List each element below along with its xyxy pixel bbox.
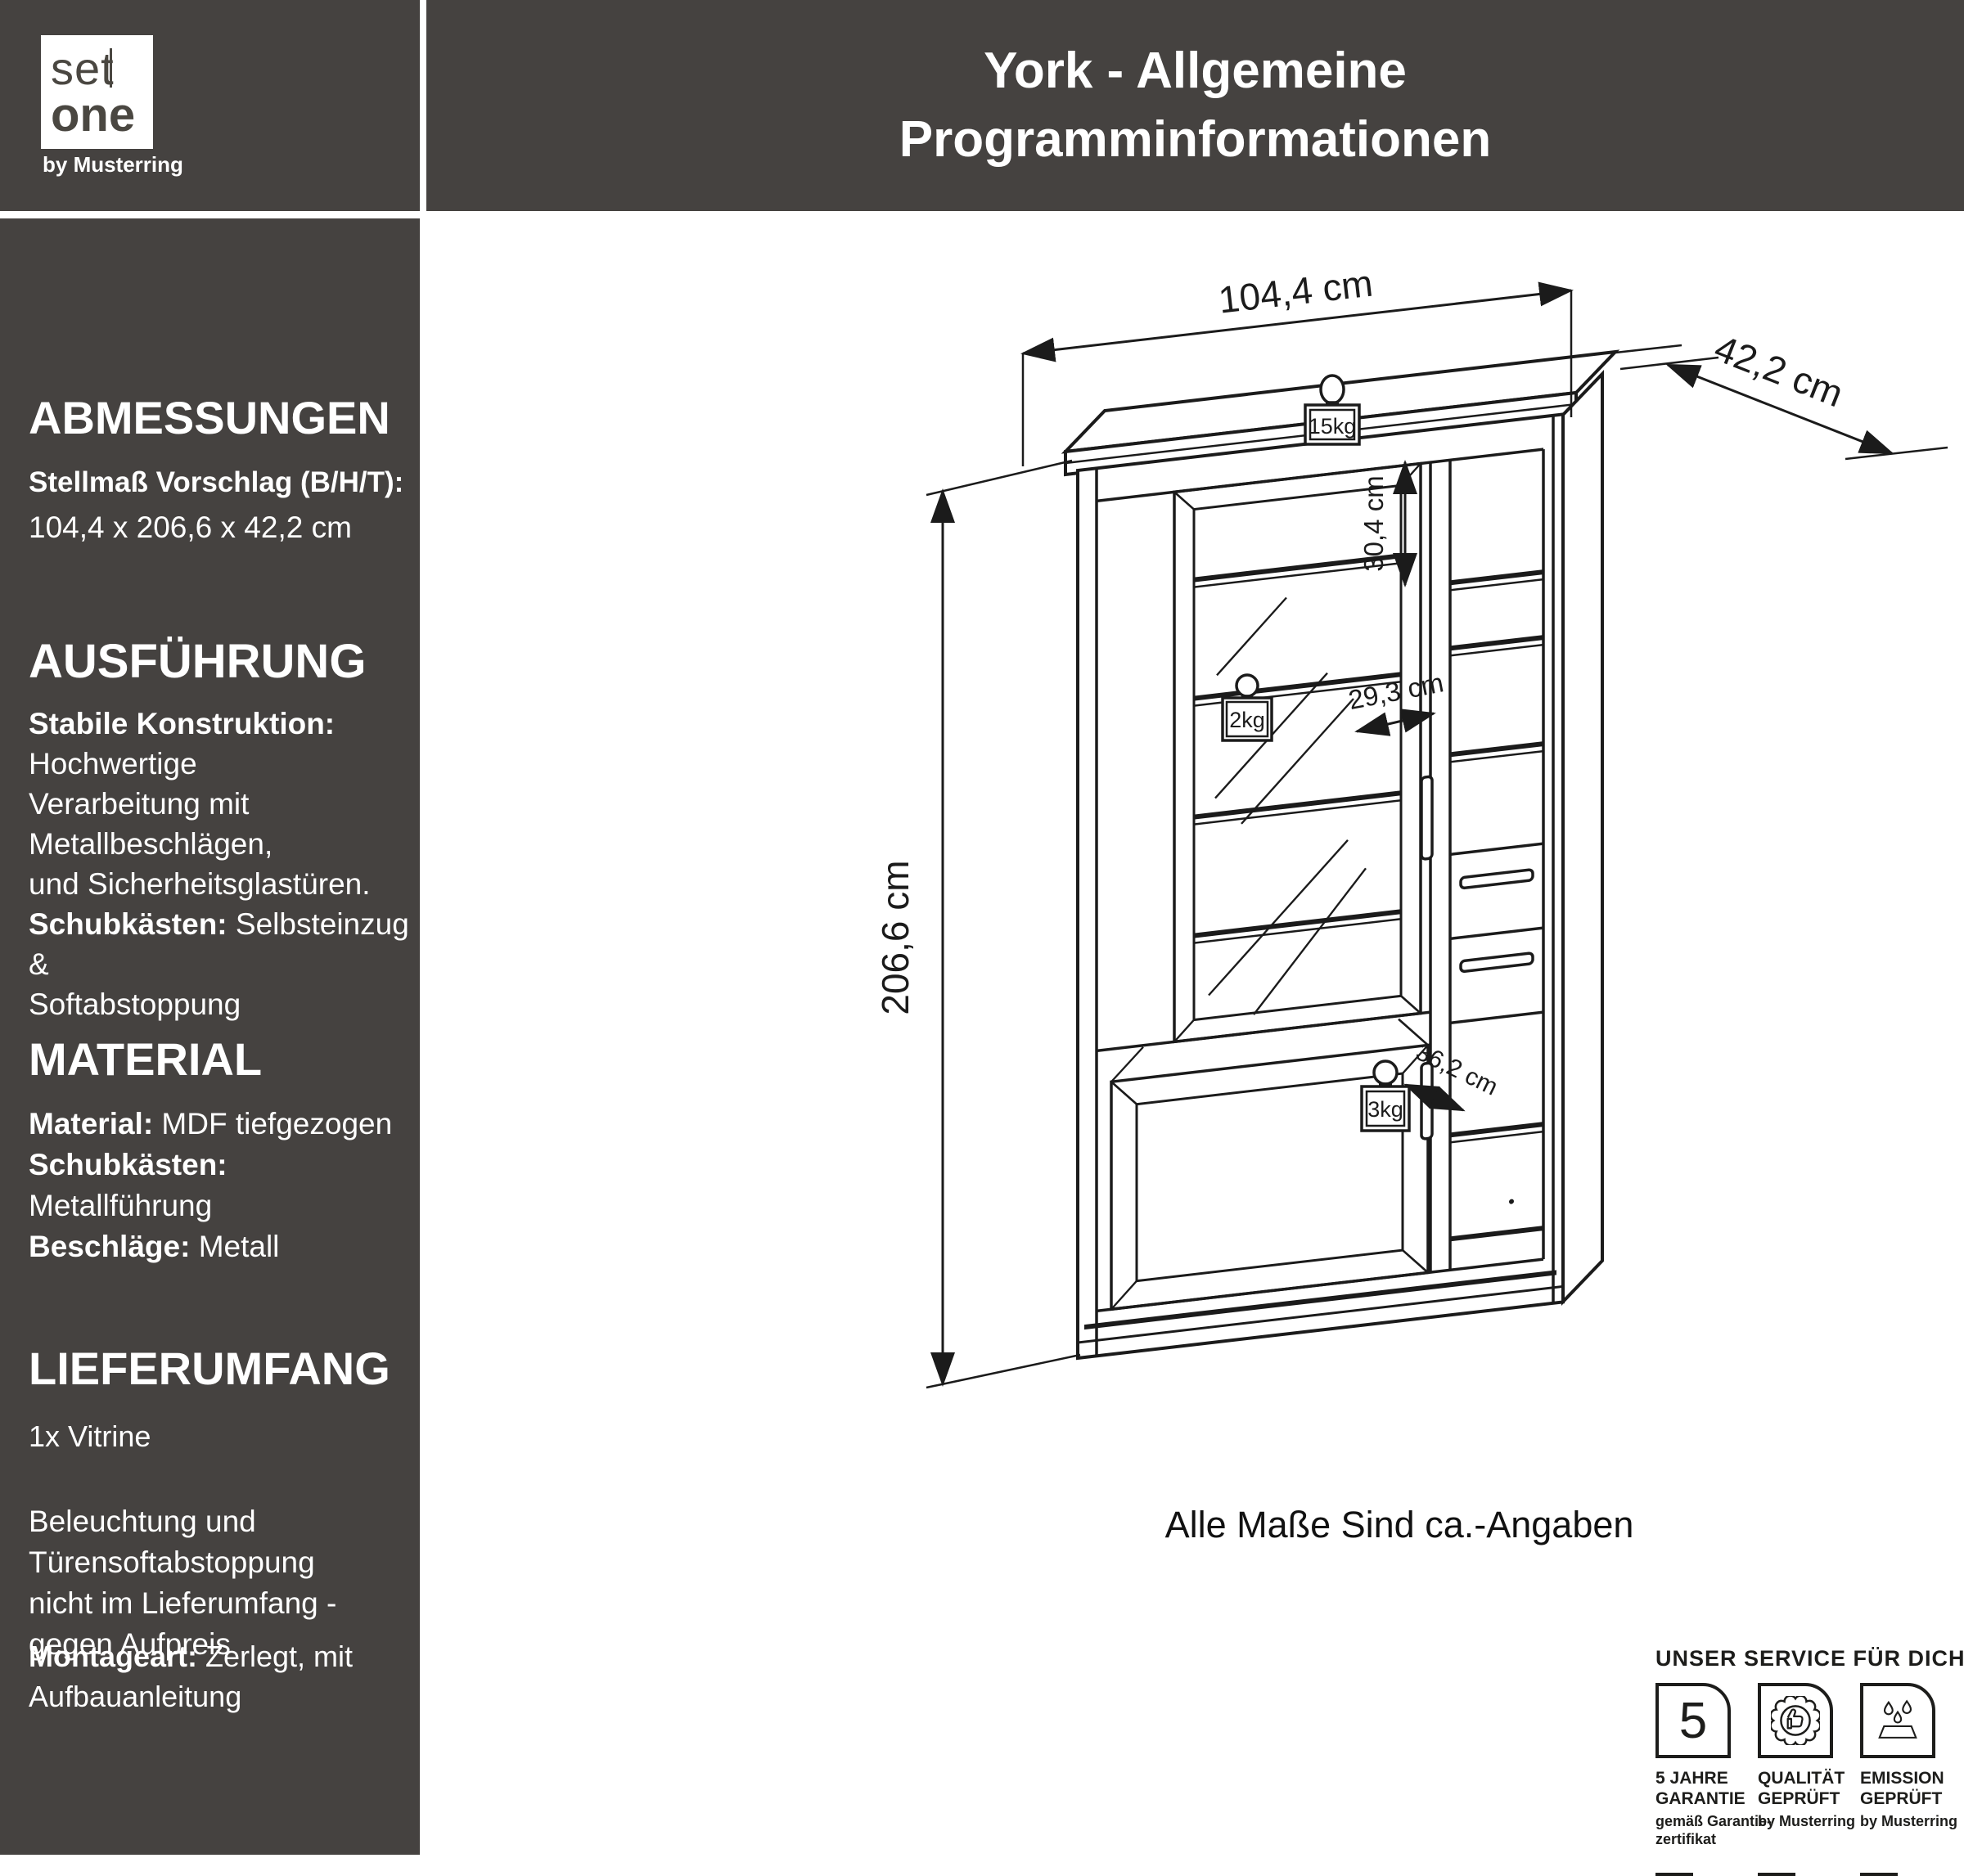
service-garantie: 5 5 JAHRE GARANTIE gemäß Garantie- zerti… bbox=[1655, 1683, 1746, 1830]
cabinet-side-panel bbox=[1563, 374, 1602, 1302]
stellmass-value: 104,4 x 206,6 x 42,2 cm bbox=[29, 507, 413, 547]
section-heading: MATERIAL bbox=[29, 1032, 413, 1086]
schubkaesten-label: Schubkästen: bbox=[29, 907, 227, 941]
service-title: GARANTIE bbox=[1655, 1788, 1746, 1809]
cabinet-front bbox=[1078, 414, 1563, 1358]
ausfuehrung-line2: Verarbeitung mit Metallbeschlägen, bbox=[29, 784, 413, 864]
width-label: 104,4 cm bbox=[1216, 262, 1375, 322]
lieferumfang-item: 1x Vitrine bbox=[29, 1416, 413, 1456]
page-title-line2: Programminformationen bbox=[899, 106, 1491, 174]
weight-3kg-label: 3kg bbox=[1367, 1097, 1403, 1122]
service-sub: gemäß Garantie- bbox=[1655, 1812, 1746, 1830]
material-value: MDF tiefgezogen bbox=[153, 1107, 392, 1140]
section-ausfuehrung: AUSFÜHRUNG Stabile Konstruktion: Hochwer… bbox=[29, 634, 413, 1024]
inner-height-label: 30,4 cm bbox=[1358, 475, 1389, 571]
montageart-row: Montageart: Zerlegt, mit Aufbauanleitung bbox=[29, 1636, 413, 1716]
konstruktion-label: Stabile Konstruktion: bbox=[29, 707, 335, 740]
service-title: GEPRÜFT bbox=[1860, 1788, 1950, 1809]
section-abmessungen: ABMESSUNGEN Stellmaß Vorschlag (B/H/T): … bbox=[29, 391, 413, 547]
service-title: GEPRÜFT bbox=[1758, 1788, 1848, 1809]
service-heading: UNSER SERVICE FÜR DICH bbox=[1655, 1646, 1950, 1671]
depth-label: 42,2 cm bbox=[1709, 326, 1849, 415]
note-line1: Beleuchtung und Türensoftabstoppung bbox=[29, 1501, 413, 1583]
glass-door-handle bbox=[1421, 776, 1432, 860]
schubkaesten-material-value: Metallführung bbox=[29, 1189, 212, 1222]
dimensions-note: Alle Maße Sind ca.-Angaben bbox=[1064, 1504, 1735, 1546]
sidebar: ABMESSUNGEN Stellmaß Vorschlag (B/H/T): … bbox=[0, 218, 420, 1855]
section-heading: LIEFERUMFANG bbox=[29, 1342, 413, 1395]
ausfuehrung-line3: und Sicherheitsglastüren. bbox=[29, 864, 413, 904]
weight-2kg-label: 2kg bbox=[1229, 708, 1265, 732]
program-info-sheet: { "brand": { "set": "set", "one": "one",… bbox=[0, 0, 1964, 1855]
five-years-icon: 5 bbox=[1655, 1683, 1731, 1758]
service-sub: zertifikat bbox=[1655, 1830, 1746, 1848]
logo-bar bbox=[110, 48, 112, 88]
service-title: QUALITÄT bbox=[1758, 1768, 1848, 1788]
service-title: 5 JAHRE bbox=[1655, 1768, 1746, 1788]
service-sub: by Musterring bbox=[1758, 1812, 1848, 1830]
section-lieferumfang: LIEFERUMFANG 1x Vitrine bbox=[29, 1342, 413, 1456]
konstruktion-text: Hochwertige bbox=[29, 747, 197, 781]
service-underline bbox=[1655, 1873, 1693, 1876]
ausfuehrung-line5: Softabstoppung bbox=[29, 984, 413, 1024]
emission-icon bbox=[1860, 1683, 1935, 1758]
montageart-label: Montageart: bbox=[29, 1640, 197, 1673]
lower-door-handle bbox=[1421, 1063, 1432, 1140]
weight-15kg-label: 15kg bbox=[1309, 414, 1357, 439]
section-material: MATERIAL Material: MDF tiefgezogen Schub… bbox=[29, 1032, 413, 1267]
service-emission: EMISSION GEPRÜFT by Musterring bbox=[1860, 1683, 1950, 1830]
page-title-line1: York - Allgemeine bbox=[984, 37, 1407, 106]
service-qualitaet: QUALITÄT GEPRÜFT by Musterring bbox=[1758, 1683, 1848, 1830]
section-heading: AUSFÜHRUNG bbox=[29, 634, 413, 689]
section-heading: ABMESSUNGEN bbox=[29, 391, 413, 444]
service-title: EMISSION bbox=[1860, 1768, 1950, 1788]
logo-byline: by Musterring bbox=[43, 152, 183, 178]
ausfuehrung-text: Stabile Konstruktion: Hochwertige Verarb… bbox=[29, 704, 413, 1024]
page-header: York - Allgemeine Programminformationen bbox=[426, 0, 1964, 211]
service-sub: by Musterring bbox=[1860, 1812, 1950, 1830]
quality-seal-icon bbox=[1758, 1683, 1833, 1758]
logo-text-one: one bbox=[51, 88, 135, 142]
service-underline bbox=[1758, 1873, 1795, 1876]
service-underline bbox=[1860, 1873, 1898, 1876]
stellmass-label: Stellmaß Vorschlag (B/H/T): bbox=[29, 462, 413, 502]
setone-logo: set one bbox=[41, 35, 153, 149]
beschlaege-label: Beschläge: bbox=[29, 1230, 190, 1263]
schubkaesten-material-label: Schubkästen: bbox=[29, 1148, 227, 1181]
material-text: Material: MDF tiefgezogen Schubkästen: M… bbox=[29, 1104, 413, 1267]
height-label: 206,6 cm bbox=[874, 860, 917, 1014]
logo-block: set one by Musterring bbox=[0, 0, 420, 211]
cabinet-technical-drawing: 15kg 2kg 3kg 104,4 cm bbox=[851, 213, 1964, 1497]
beschlaege-value: Metall bbox=[190, 1230, 279, 1263]
material-label: Material: bbox=[29, 1107, 153, 1140]
